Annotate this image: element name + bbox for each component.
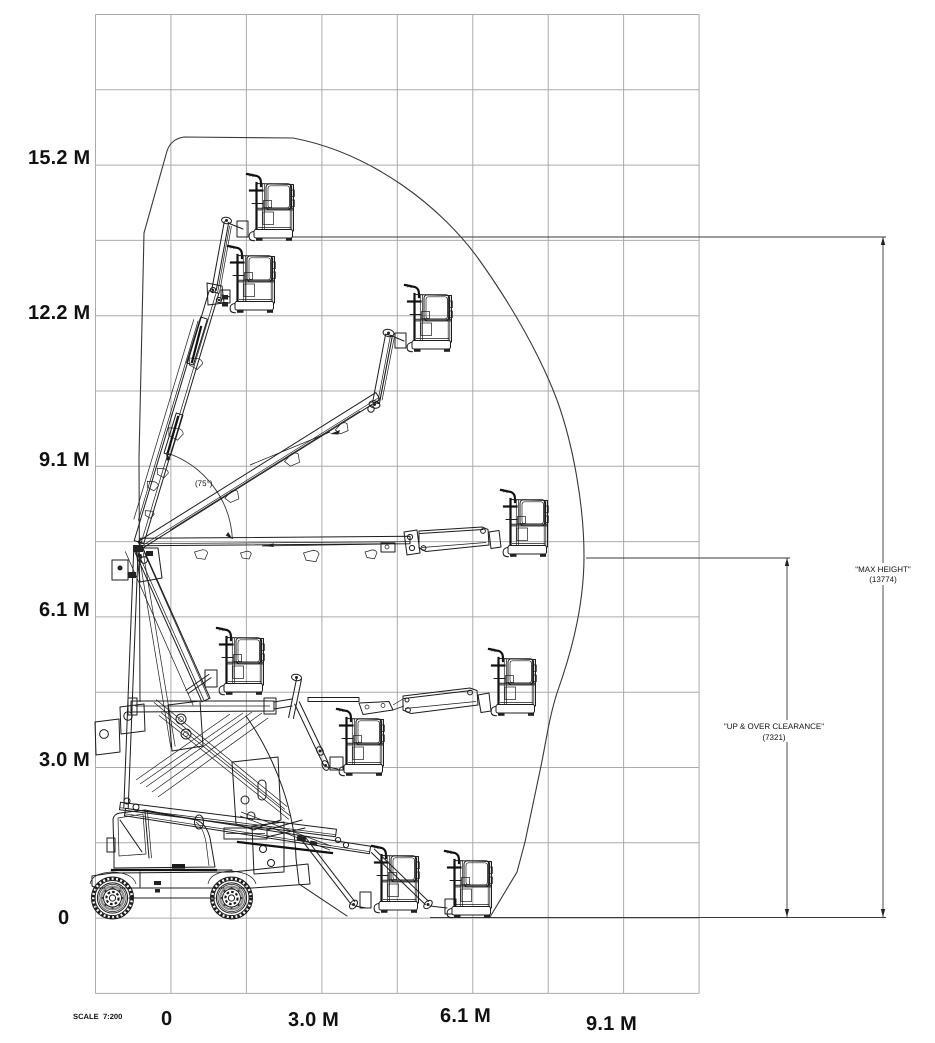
svg-text:"MAX HEIGHT": "MAX HEIGHT" [855,565,911,574]
svg-text:SCALE 7:200: SCALE 7:200 [73,1012,122,1021]
svg-text:(7321): (7321) [762,733,785,742]
svg-text:"UP & OVER CLEARANCE": "UP & OVER CLEARANCE" [724,722,824,731]
svg-text:9.1 M: 9.1 M [39,449,90,471]
svg-text:(13774): (13774) [869,575,897,584]
svg-text:6.1 M: 6.1 M [440,1005,491,1027]
svg-text:6.1 M: 6.1 M [39,599,90,621]
svg-text:12.2 M: 12.2 M [28,302,90,324]
svg-text:0: 0 [58,907,69,929]
svg-text:3.0 M: 3.0 M [288,1009,339,1031]
svg-text:0: 0 [161,1008,172,1030]
svg-text:(75°): (75°) [195,479,213,488]
svg-text:15.2 M: 15.2 M [28,147,90,169]
svg-text:9.1 M: 9.1 M [586,1013,637,1035]
svg-text:3.0 M: 3.0 M [39,749,90,771]
